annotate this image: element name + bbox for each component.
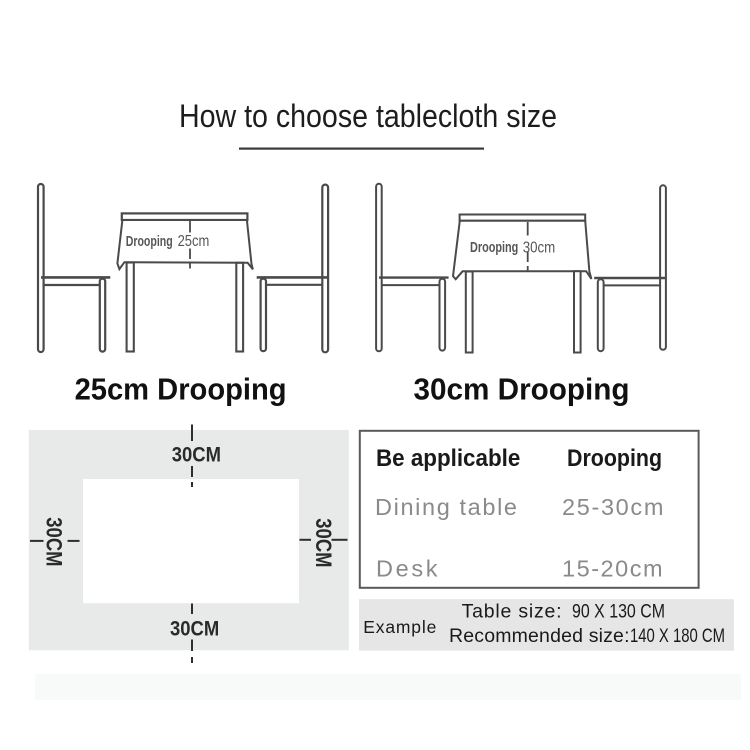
svg-text:25cm Drooping: 25cm Drooping <box>75 373 287 407</box>
svg-text:Table size:: Table size: <box>462 601 562 623</box>
svg-text:25cm: 25cm <box>178 233 210 250</box>
svg-text:Desk: Desk <box>376 556 438 582</box>
svg-text:Drooping: Drooping <box>126 234 173 250</box>
svg-text:90 X 130 CM: 90 X 130 CM <box>572 601 665 623</box>
svg-text:30CM: 30CM <box>170 618 219 641</box>
svg-text:30CM: 30CM <box>41 517 66 566</box>
svg-text:Recommended size:: Recommended size: <box>449 625 630 647</box>
svg-text:15-20cm: 15-20cm <box>562 556 663 582</box>
svg-text:How to choose tablecloth size: How to choose tablecloth size <box>179 98 557 134</box>
svg-text:Example: Example <box>363 617 436 637</box>
svg-text:30cm: 30cm <box>523 239 556 256</box>
svg-text:Drooping: Drooping <box>567 445 662 472</box>
svg-text:140 X 180 CM: 140 X 180 CM <box>630 625 725 647</box>
svg-text:30CM: 30CM <box>311 518 336 567</box>
svg-text:25-30cm: 25-30cm <box>562 494 663 520</box>
svg-text:Drooping: Drooping <box>470 240 518 256</box>
svg-text:Be applicable: Be applicable <box>376 445 520 472</box>
svg-text:30cm Drooping: 30cm Drooping <box>414 373 630 407</box>
svg-text:30CM: 30CM <box>172 444 221 467</box>
